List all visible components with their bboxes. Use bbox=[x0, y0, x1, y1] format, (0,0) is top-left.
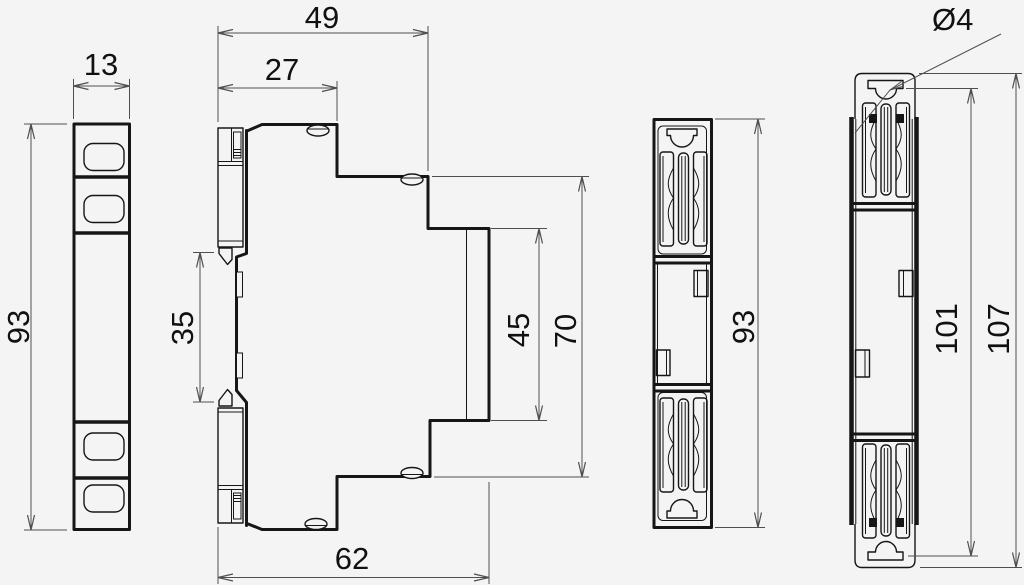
dim-label-face-height: 45 bbox=[501, 313, 536, 347]
dim-label-bottom-depth: 62 bbox=[335, 541, 369, 576]
contact-mark bbox=[869, 114, 877, 123]
side-latch-tab bbox=[899, 271, 913, 297]
dim-label-terminal-depth: 27 bbox=[265, 52, 299, 87]
terminal-block-bottom bbox=[218, 408, 243, 523]
screw-hole-t-slot bbox=[868, 542, 903, 561]
dim-label-body-height: 70 bbox=[548, 314, 583, 348]
rear-view bbox=[654, 120, 712, 528]
dimension-front-height: 93 bbox=[1, 124, 67, 530]
terminal-screw-slot bbox=[234, 132, 242, 158]
din-clip-view bbox=[852, 74, 917, 568]
screw-head bbox=[401, 174, 423, 185]
screw-head bbox=[401, 468, 423, 479]
din-clip-hook bbox=[219, 390, 232, 407]
dimension-top-depth: 49 bbox=[218, 0, 428, 171]
rear-edge bbox=[237, 131, 247, 526]
rail-tab bbox=[237, 353, 243, 378]
dimension-terminal-depth: 27 bbox=[218, 52, 337, 121]
rail-tab bbox=[237, 272, 243, 297]
contact-mark bbox=[869, 518, 877, 527]
screw-head bbox=[307, 125, 329, 136]
dim-label-hole-diameter: Ø4 bbox=[932, 2, 973, 37]
dimension-clip-gap: 35 bbox=[165, 253, 214, 403]
side-profile-outline bbox=[247, 125, 489, 530]
screw-hole-t-slot bbox=[667, 129, 697, 147]
dim-label-clip-gap: 35 bbox=[165, 311, 200, 345]
label-slot bbox=[84, 433, 124, 460]
dimension-rear-height: 93 bbox=[715, 119, 765, 528]
front-view bbox=[74, 124, 130, 530]
terminal-block-top bbox=[218, 128, 243, 247]
terminal-screw-slot bbox=[234, 493, 242, 519]
terminal-contacts bbox=[660, 152, 707, 246]
terminal-contacts bbox=[660, 398, 707, 492]
side-latch-tab bbox=[694, 271, 708, 297]
dimension-front-width: 13 bbox=[74, 47, 130, 119]
technical-drawing: 13 93 49 27 35 45 bbox=[0, 0, 1024, 585]
dimension-hole-diameter: Ø4 bbox=[855, 2, 1001, 133]
front-view-body bbox=[74, 124, 130, 530]
screw-head bbox=[305, 519, 327, 530]
side-view bbox=[218, 125, 489, 530]
side-latch-tab bbox=[856, 350, 870, 377]
label-slot bbox=[84, 485, 124, 512]
dim-label-rear-height: 93 bbox=[726, 310, 761, 344]
contact-mark bbox=[896, 518, 904, 527]
screw-hole-t-slot bbox=[667, 500, 697, 519]
dim-label-overall-height: 107 bbox=[981, 303, 1016, 355]
dimension-face-height: 45 bbox=[491, 229, 547, 421]
dimension-bottom-depth: 62 bbox=[218, 482, 489, 584]
dimensions: 13 93 49 27 35 45 bbox=[1, 0, 1022, 584]
dim-label-front-height: 93 bbox=[1, 310, 36, 344]
din-clip-hook bbox=[219, 248, 232, 265]
label-slot bbox=[84, 196, 124, 223]
dim-label-top-depth: 49 bbox=[305, 0, 339, 35]
label-slot bbox=[84, 144, 124, 171]
dim-label-front-width: 13 bbox=[84, 47, 118, 82]
side-latch-tab bbox=[657, 350, 671, 376]
dim-label-clip-inner-height: 101 bbox=[929, 303, 964, 355]
contact-mark bbox=[896, 114, 904, 123]
